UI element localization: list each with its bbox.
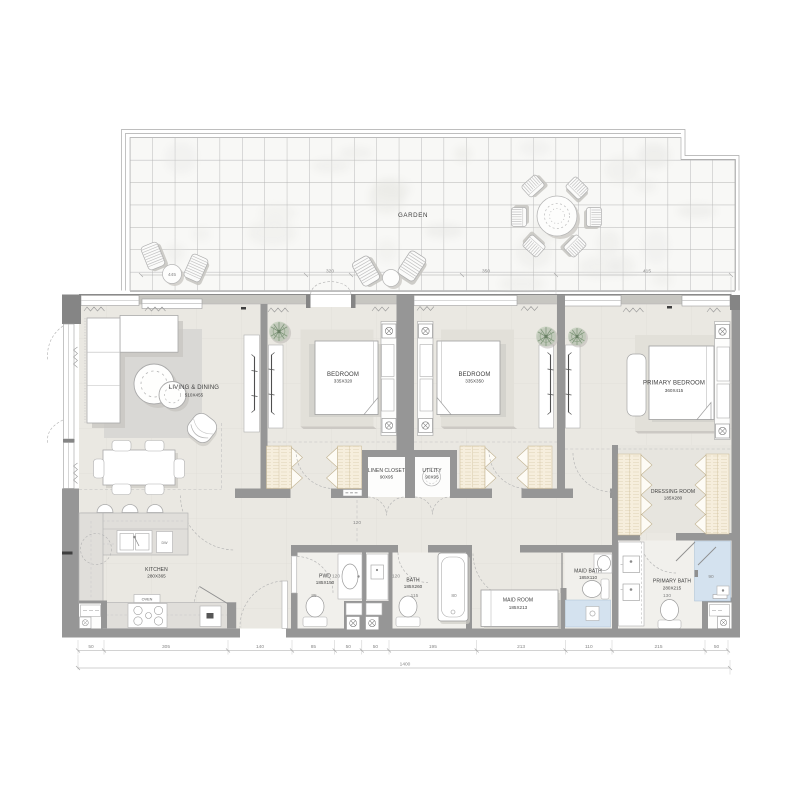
svg-text:115: 115 bbox=[411, 593, 419, 599]
svg-text:1400: 1400 bbox=[400, 662, 411, 668]
svg-text:90X95: 90X95 bbox=[425, 475, 439, 480]
svg-text:UTILITY: UTILITY bbox=[422, 468, 442, 474]
svg-text:50: 50 bbox=[346, 644, 352, 650]
svg-text:90X95: 90X95 bbox=[380, 475, 394, 480]
svg-text:185X280: 185X280 bbox=[664, 496, 683, 501]
svg-text:120: 120 bbox=[332, 574, 340, 580]
svg-text:KITCHEN: KITCHEN bbox=[145, 567, 168, 573]
svg-text:185X150: 185X150 bbox=[316, 580, 335, 585]
svg-text:DW: DW bbox=[162, 541, 169, 545]
svg-text:510X455: 510X455 bbox=[185, 393, 204, 398]
svg-text:50: 50 bbox=[714, 644, 720, 650]
svg-text:50: 50 bbox=[373, 644, 379, 650]
svg-text:LIVING & DINING: LIVING & DINING bbox=[169, 385, 219, 391]
svg-text:LINEN CLOSET: LINEN CLOSET bbox=[368, 468, 405, 474]
svg-text:185X260: 185X260 bbox=[404, 584, 423, 589]
svg-text:OVEN: OVEN bbox=[142, 598, 153, 602]
svg-text:360X415: 360X415 bbox=[665, 388, 684, 393]
svg-text:280X215: 280X215 bbox=[663, 586, 682, 591]
svg-text:50: 50 bbox=[88, 644, 94, 650]
svg-text:215: 215 bbox=[654, 644, 662, 650]
svg-text:90: 90 bbox=[708, 574, 714, 580]
svg-text:85: 85 bbox=[311, 593, 317, 599]
svg-text:445: 445 bbox=[168, 272, 176, 278]
svg-text:MAID BATH: MAID BATH bbox=[574, 569, 602, 575]
svg-text:350: 350 bbox=[482, 269, 490, 275]
svg-text:130: 130 bbox=[663, 593, 671, 599]
svg-text:MAID ROOM: MAID ROOM bbox=[503, 598, 533, 604]
svg-text:335X320: 335X320 bbox=[334, 379, 353, 384]
svg-text:140: 140 bbox=[256, 644, 264, 650]
svg-text:PRIMARY BATH: PRIMARY BATH bbox=[653, 579, 691, 585]
svg-text:305: 305 bbox=[162, 644, 170, 650]
svg-text:335X350: 335X350 bbox=[465, 379, 484, 384]
svg-text:BATH: BATH bbox=[406, 578, 420, 584]
svg-text:415: 415 bbox=[643, 269, 651, 275]
svg-text:185X110: 185X110 bbox=[579, 575, 597, 580]
svg-text:80: 80 bbox=[451, 593, 457, 599]
svg-text:280X365: 280X365 bbox=[147, 574, 166, 579]
svg-text:320: 320 bbox=[326, 269, 334, 275]
svg-text:195: 195 bbox=[429, 644, 437, 650]
svg-text:GARDEN: GARDEN bbox=[398, 212, 428, 219]
svg-text:DRESSING ROOM: DRESSING ROOM bbox=[651, 489, 695, 495]
svg-text:120: 120 bbox=[392, 574, 400, 580]
svg-text:BEDROOM: BEDROOM bbox=[458, 372, 490, 378]
svg-text:213: 213 bbox=[517, 644, 525, 650]
svg-text:120: 120 bbox=[353, 520, 361, 526]
svg-text:85: 85 bbox=[311, 644, 317, 650]
svg-text:BEDROOM: BEDROOM bbox=[327, 372, 359, 378]
svg-text:185X213: 185X213 bbox=[509, 605, 528, 610]
svg-text:110: 110 bbox=[585, 644, 593, 650]
svg-text:PRIMARY BEDROOM: PRIMARY BEDROOM bbox=[643, 381, 705, 387]
svg-text:PWD: PWD bbox=[319, 574, 331, 580]
